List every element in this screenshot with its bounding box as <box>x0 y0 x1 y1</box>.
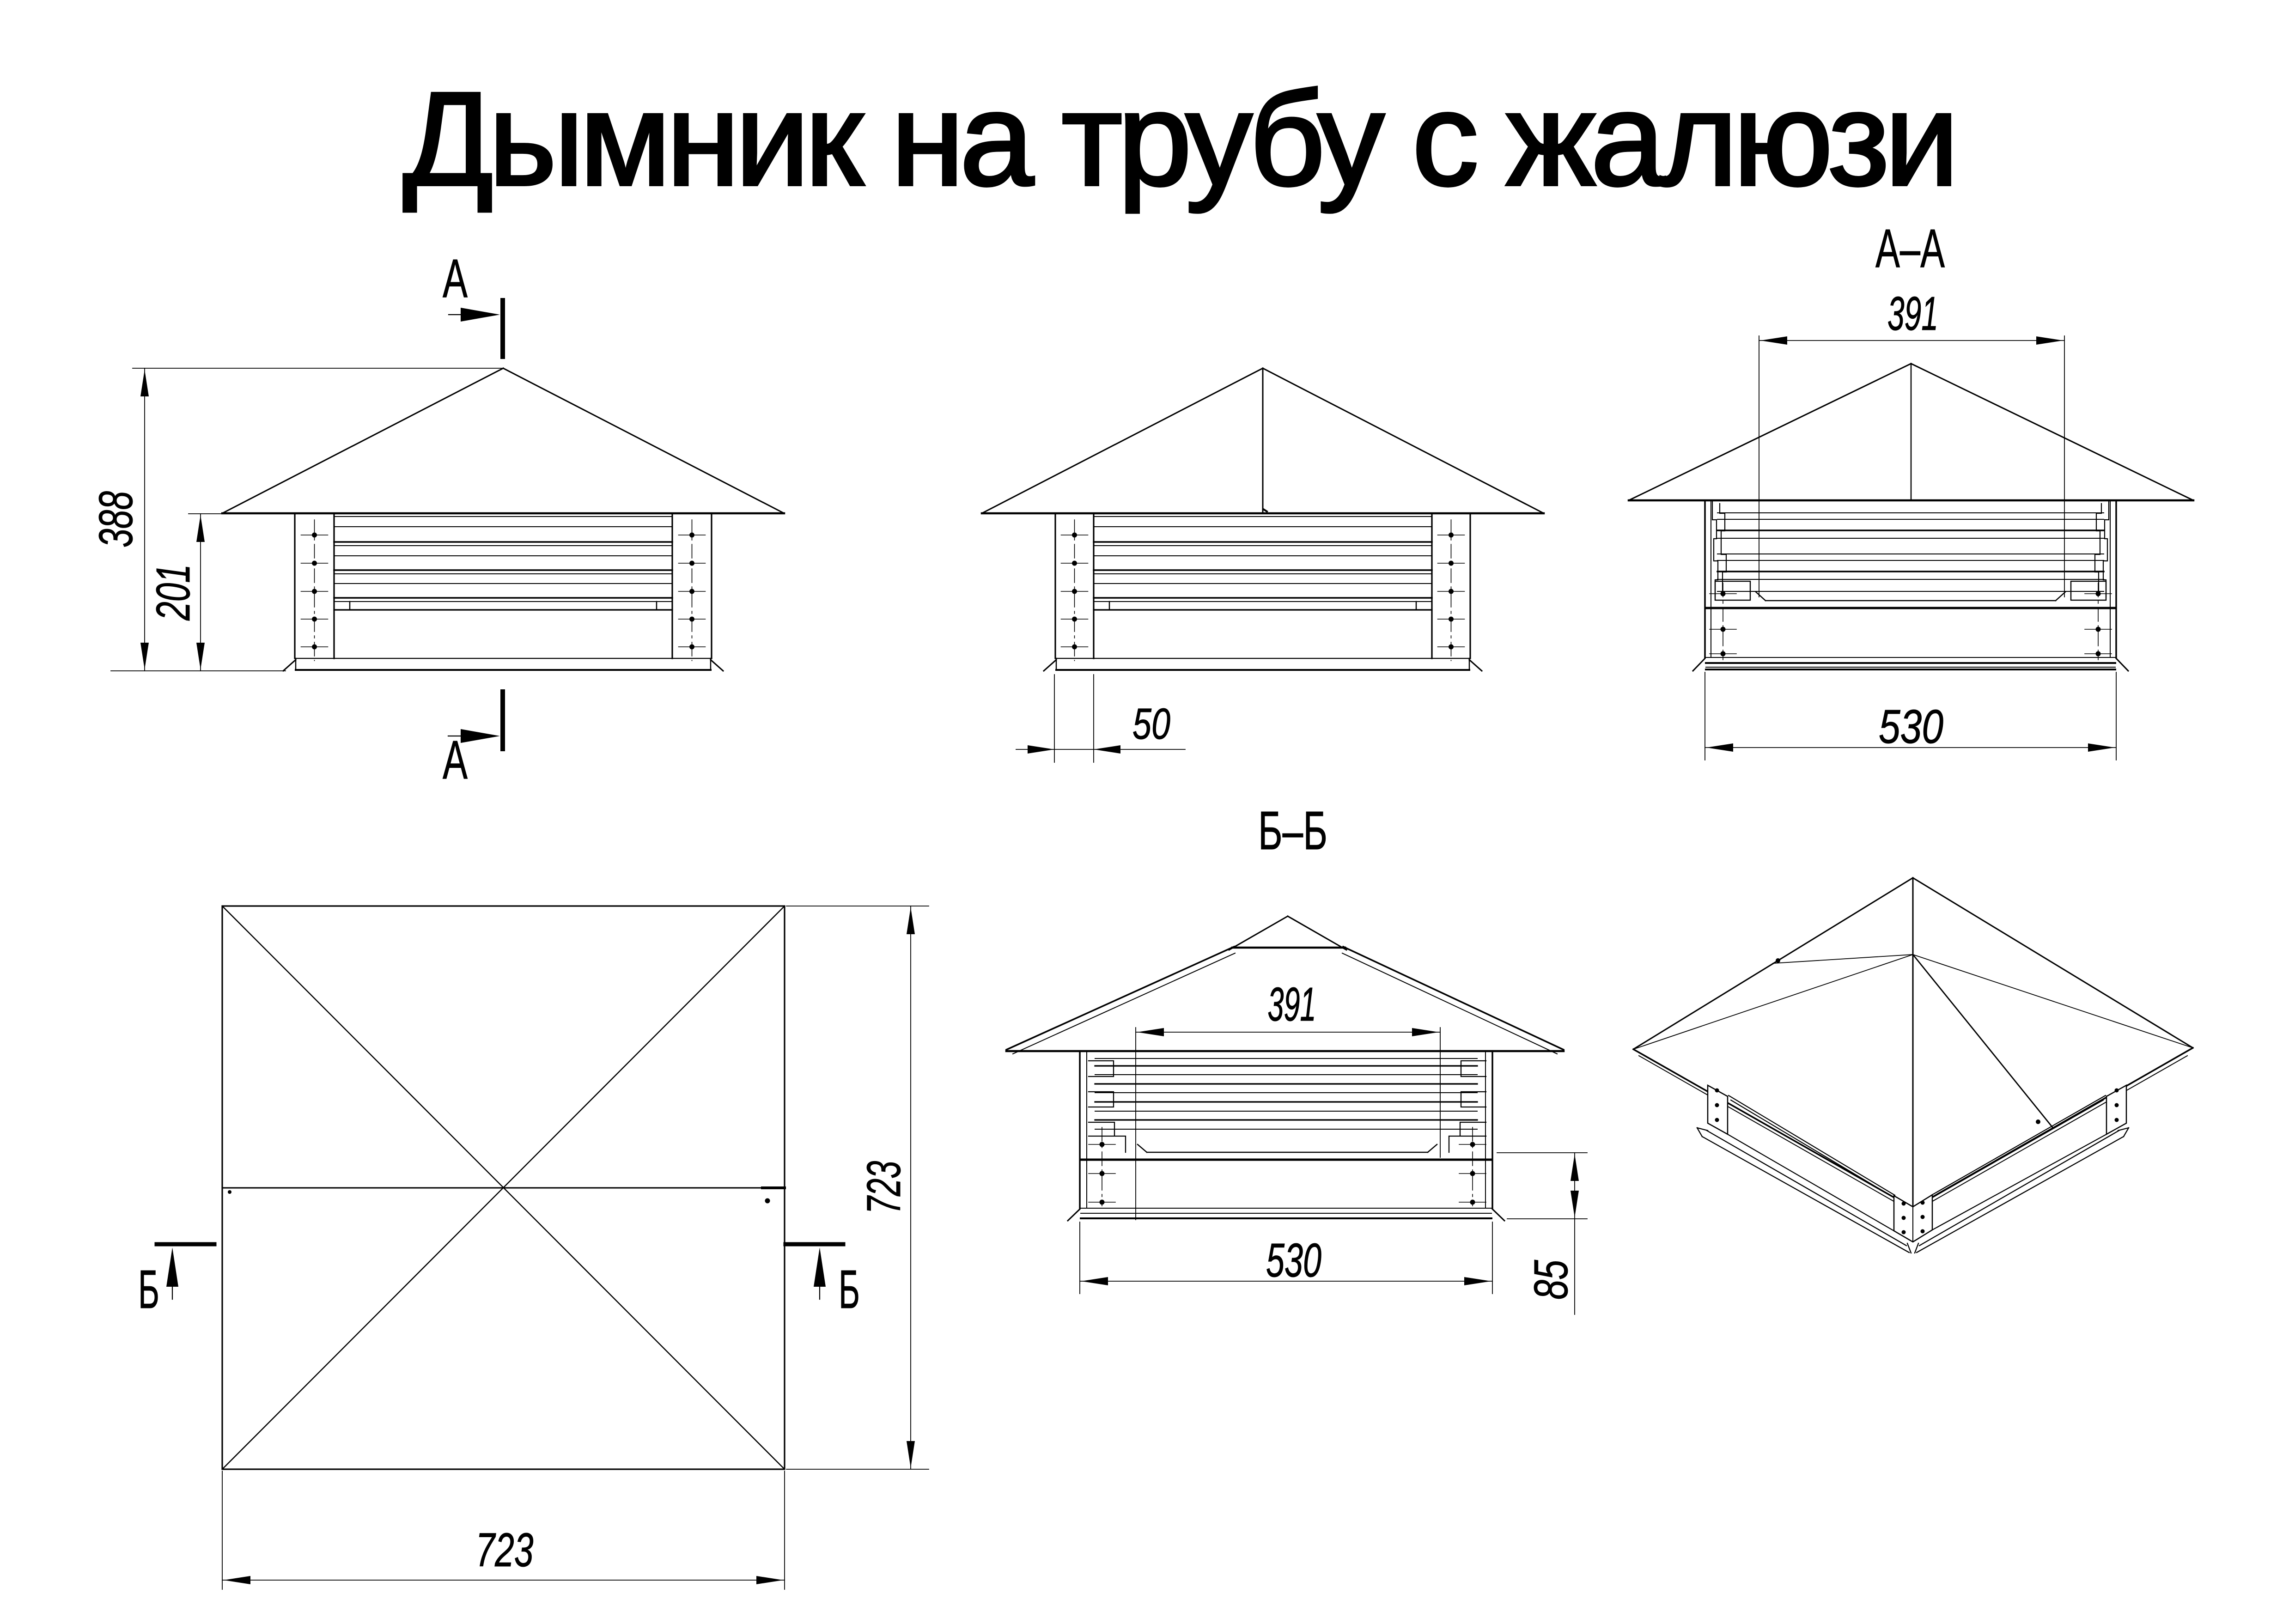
svg-text:50: 50 <box>1132 699 1170 748</box>
svg-text:Дымник на трубу с жалюзи: Дымник на трубу с жалюзи <box>403 65 1954 214</box>
svg-text:530: 530 <box>1879 700 1943 753</box>
svg-text:201: 201 <box>146 564 200 621</box>
svg-text:А: А <box>443 730 468 791</box>
svg-text:Б: Б <box>138 1259 159 1320</box>
svg-text:А–А: А–А <box>1875 218 1945 279</box>
svg-text:391: 391 <box>1268 978 1316 1031</box>
svg-text:А: А <box>443 248 468 309</box>
svg-text:530: 530 <box>1266 1234 1321 1287</box>
svg-text:723: 723 <box>476 1523 534 1576</box>
svg-text:Б: Б <box>839 1259 860 1320</box>
svg-text:391: 391 <box>1887 287 1938 340</box>
svg-text:723: 723 <box>857 1161 910 1214</box>
svg-text:85: 85 <box>1524 1259 1577 1300</box>
svg-text:Б–Б: Б–Б <box>1258 800 1327 861</box>
svg-text:388: 388 <box>89 491 142 547</box>
